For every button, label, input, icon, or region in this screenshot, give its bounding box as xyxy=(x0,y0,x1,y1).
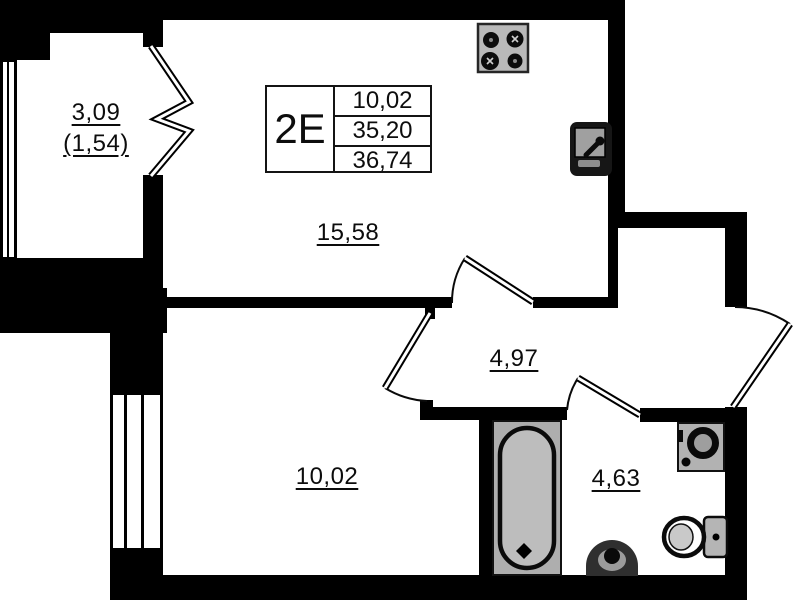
bedroom-window-icon xyxy=(110,395,163,548)
wall xyxy=(17,258,145,290)
hallway-area-value: 4,97 xyxy=(490,343,539,374)
wall xyxy=(725,407,747,600)
wall xyxy=(608,20,625,228)
living-hall-door-icon xyxy=(452,258,533,303)
unit-type-label: 2E xyxy=(267,87,335,171)
bedroom-door-icon xyxy=(385,313,430,401)
wall xyxy=(163,297,452,308)
stove-icon xyxy=(478,24,528,72)
toilet-icon xyxy=(664,517,727,557)
wall xyxy=(533,297,618,308)
balcony-area-label: 3,09 (1,54) xyxy=(40,97,152,159)
bathroom-area-value: 4,63 xyxy=(592,463,641,494)
kitchen-sink-icon xyxy=(570,122,612,176)
wall xyxy=(143,175,163,290)
floor-plan: 2E 10,02 35,20 36,74 3,09 (1,54) 15,58 4… xyxy=(0,0,799,600)
kitchen-living-area-value: 15,58 xyxy=(317,217,380,248)
wall xyxy=(0,288,167,333)
stamp-area-row: 36,74 xyxy=(335,147,430,175)
wall xyxy=(479,407,492,577)
wall xyxy=(608,212,747,228)
unit-areas: 10,02 35,20 36,74 xyxy=(335,87,430,171)
bedroom-area-value: 10,02 xyxy=(296,461,359,492)
wall xyxy=(608,228,618,298)
wall xyxy=(0,20,17,62)
wall xyxy=(640,408,727,422)
balcony-area-coefficient: (1,54) xyxy=(63,128,129,159)
wall xyxy=(110,333,163,395)
wall xyxy=(143,20,163,47)
washbasin-icon xyxy=(586,540,638,576)
bathroom-area-label: 4,63 xyxy=(576,463,656,494)
wall xyxy=(725,228,747,307)
bathroom-door-icon xyxy=(567,378,640,415)
balcony-window-icon xyxy=(0,62,17,257)
stamp-area-row: 10,02 xyxy=(335,87,430,117)
kitchen-living-area-label: 15,58 xyxy=(298,217,398,248)
bedroom-area-label: 10,02 xyxy=(282,461,372,492)
hallway-area-label: 4,97 xyxy=(474,343,554,374)
wall xyxy=(110,575,747,600)
bathtub-icon xyxy=(493,421,561,575)
washing-machine-icon xyxy=(678,423,724,471)
wall xyxy=(0,0,625,20)
entry-door-icon xyxy=(733,307,790,407)
unit-stamp: 2E 10,02 35,20 36,74 xyxy=(265,85,432,173)
wall xyxy=(17,20,50,60)
balcony-area-value: 3,09 xyxy=(72,97,121,128)
wall xyxy=(427,407,567,420)
stamp-area-row: 35,20 xyxy=(335,117,430,147)
balcony-door-icon xyxy=(151,46,189,176)
